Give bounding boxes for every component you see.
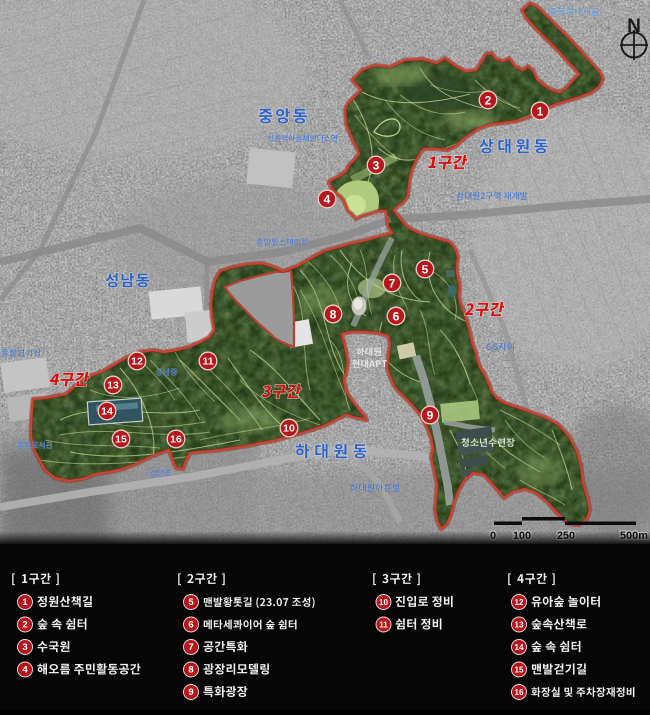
svg-text:3: 3 [22,642,27,653]
svg-text:2: 2 [485,94,492,108]
svg-text:1: 1 [537,105,544,119]
svg-text:6: 6 [393,310,400,324]
svg-text:12: 12 [515,598,524,607]
svg-text:7: 7 [389,277,396,291]
svg-text:8: 8 [188,665,193,676]
svg-text:8: 8 [330,308,337,322]
svg-text:9: 9 [188,687,193,698]
svg-text:13: 13 [515,621,524,630]
svg-text:11: 11 [202,356,213,368]
svg-text:7: 7 [188,642,193,653]
svg-text:14: 14 [515,643,524,652]
svg-text:16: 16 [170,434,182,446]
svg-text:1: 1 [22,597,28,608]
svg-text:4: 4 [22,665,28,676]
svg-text:6: 6 [188,620,193,631]
svg-text:15: 15 [115,434,127,446]
svg-text:4: 4 [324,193,331,207]
svg-text:12: 12 [131,356,143,368]
svg-text:13: 13 [107,380,119,392]
svg-text:3: 3 [373,159,380,173]
svg-text:15: 15 [515,666,524,675]
svg-text:5: 5 [422,263,429,277]
svg-text:5: 5 [188,597,194,608]
svg-text:10: 10 [379,598,388,607]
svg-text:16: 16 [515,688,524,697]
svg-text:2: 2 [22,620,27,631]
svg-text:9: 9 [427,409,434,423]
svg-text:10: 10 [283,423,295,435]
svg-text:14: 14 [101,406,113,418]
svg-text:11: 11 [379,621,388,630]
